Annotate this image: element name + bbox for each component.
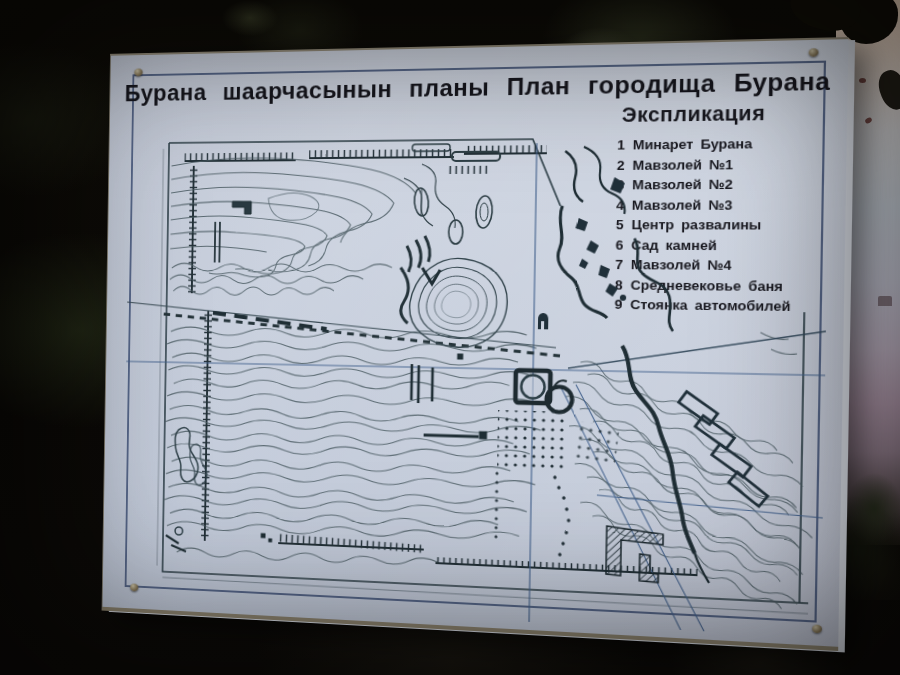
- site-map: [121, 113, 832, 638]
- information-board: Бурана шаарчасынын планы План городища Б…: [102, 37, 849, 651]
- misc-marks: [166, 201, 491, 565]
- red-leaf: [859, 78, 866, 83]
- parking-rectangles: [677, 391, 769, 506]
- contour-lines-upper-left: [170, 157, 417, 297]
- screw-top-right: [809, 48, 819, 57]
- ruins-marks: [538, 146, 676, 331]
- stone-garden-dot-grid: [494, 410, 620, 559]
- bathhouse-hatched-building: [606, 526, 663, 583]
- photo-scene: Бурана шаарчасынын планы План городища Б…: [0, 0, 900, 675]
- mausoleum-oval-symbols: [403, 144, 500, 245]
- distant-building-silhouette: [878, 296, 892, 306]
